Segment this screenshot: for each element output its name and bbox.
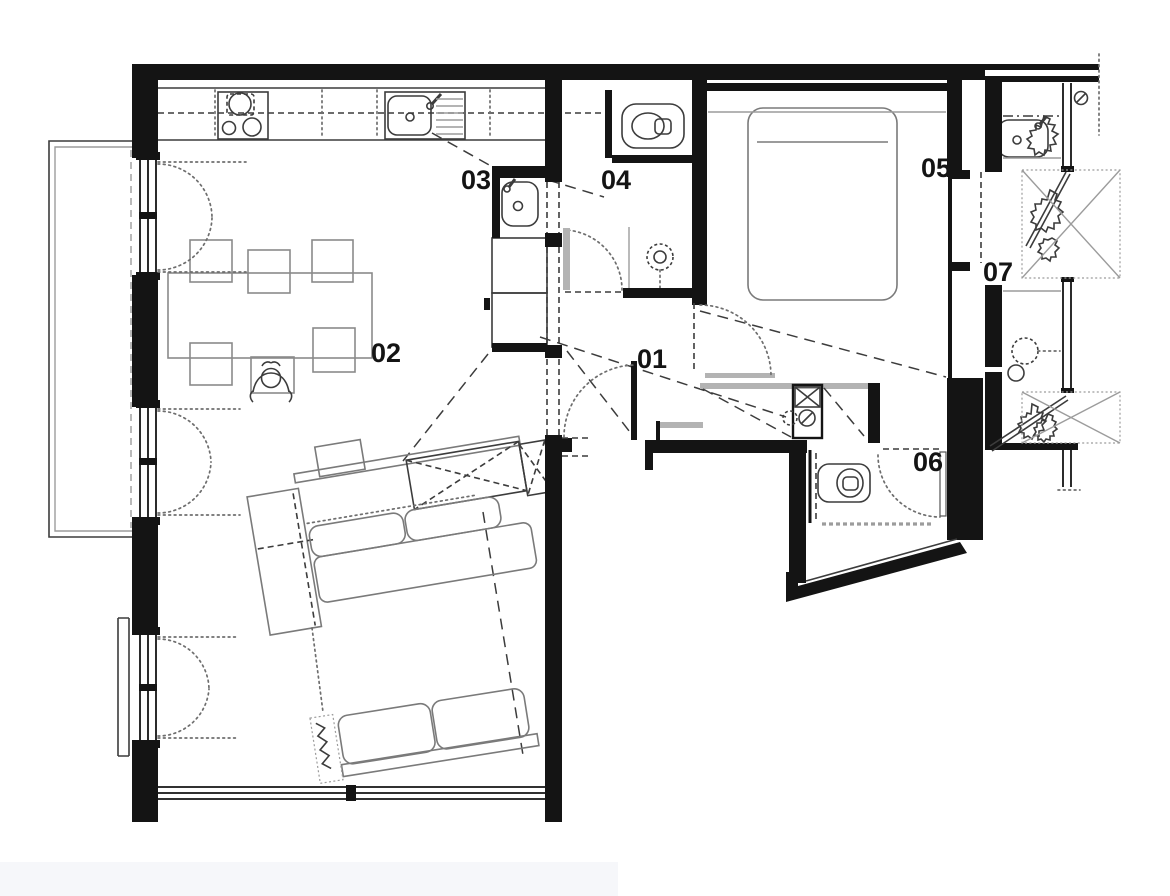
dryer-icon bbox=[783, 410, 815, 426]
bottom-edge-artifact bbox=[0, 862, 618, 896]
balcony-left bbox=[49, 141, 132, 756]
window-left-1 bbox=[136, 152, 160, 280]
seat-cushion bbox=[431, 687, 531, 750]
washing-machine-icon bbox=[795, 387, 820, 407]
sofa-seat bbox=[313, 522, 538, 604]
person-seated bbox=[250, 362, 291, 402]
double-bed bbox=[748, 108, 897, 300]
window-left-2 bbox=[136, 400, 160, 525]
chair bbox=[312, 240, 353, 282]
toilet-icon bbox=[622, 104, 684, 148]
room-label-01: 01 bbox=[637, 344, 667, 374]
chair bbox=[313, 328, 355, 372]
seat-cushion bbox=[337, 702, 437, 765]
room-label-02: 02 bbox=[371, 338, 401, 368]
chair bbox=[248, 250, 290, 293]
room-label-07: 07 bbox=[983, 257, 1013, 287]
room-label-05: 05 bbox=[921, 153, 951, 183]
chair bbox=[190, 240, 232, 282]
chaise-lounge bbox=[247, 488, 321, 635]
window-bottom bbox=[158, 785, 545, 801]
wardrobe bbox=[700, 373, 868, 438]
window-left-3 bbox=[136, 627, 160, 748]
chair bbox=[190, 343, 232, 385]
side-table bbox=[315, 440, 365, 477]
open-casement-leaf bbox=[1026, 172, 1070, 248]
dining-set bbox=[168, 240, 372, 402]
room-label-04: 04 bbox=[601, 165, 631, 195]
casement-swing-box bbox=[1022, 392, 1120, 443]
floor-plan-canvas: 01 02 03 04 05 06 07 bbox=[0, 0, 1170, 896]
interior-walls bbox=[492, 80, 1078, 602]
room-label-06: 06 bbox=[913, 447, 943, 477]
potted-plant-icon bbox=[1008, 338, 1060, 381]
washbasin-icon bbox=[998, 117, 1048, 157]
base-cabinets bbox=[484, 238, 547, 352]
shower-head-icon bbox=[647, 244, 673, 292]
prep-sink-icon bbox=[502, 179, 538, 226]
floor-plan-drawing: 01 02 03 04 05 06 07 bbox=[0, 0, 1170, 896]
sofa-sectional bbox=[241, 409, 569, 783]
wardrobe-bench bbox=[658, 422, 703, 428]
door-leaf bbox=[563, 228, 570, 290]
toilet-icon bbox=[818, 464, 870, 502]
cooktop-icon bbox=[218, 92, 268, 139]
handle-icon bbox=[1075, 92, 1088, 105]
kitchen-sink-icon bbox=[385, 92, 465, 139]
dining-table bbox=[168, 273, 372, 358]
wall-openings bbox=[547, 172, 981, 456]
room-label-03: 03 bbox=[461, 165, 491, 195]
